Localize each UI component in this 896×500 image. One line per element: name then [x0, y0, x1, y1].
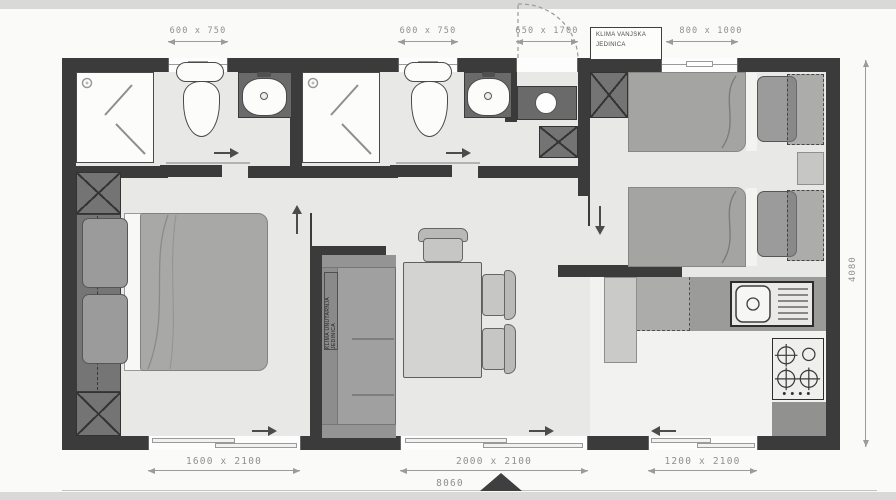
chair-east-2-seat: [482, 328, 506, 370]
pocket-door-bathroom-2: [390, 165, 452, 177]
dim-line-window-2: [398, 41, 458, 42]
water-heater-icon: [535, 92, 557, 114]
kitchen-counter-south: [772, 402, 826, 436]
dim-line-bottom-2: [400, 470, 588, 471]
sofa-cushion-seam-1: [352, 338, 394, 340]
door-slide-arrow-bathroom-1-icon: [214, 152, 230, 154]
bedroom-2-nightstand: [797, 152, 824, 185]
shower-1: [76, 72, 154, 163]
slide-arrow-window-kitchen-icon: [660, 430, 676, 432]
double-bed-pillow-1: [82, 218, 128, 288]
twin-bed-1-sheet-gap: [746, 73, 757, 151]
pocket-door-track-2: [396, 162, 480, 164]
dim-line-bottom-3: [648, 470, 757, 471]
north-marker-icon: [480, 473, 522, 491]
sliding-door-living: [400, 436, 588, 450]
window-bedroom-2: [661, 58, 738, 72]
sink-2-faucet-icon: [482, 72, 495, 77]
double-bed-pillow-2: [82, 294, 128, 364]
kitchen-sink-unit: [730, 281, 814, 327]
chair-north-seat: [423, 238, 463, 262]
kitchen-hob: [772, 338, 824, 400]
twin-bed-2-sheet-gap: [746, 188, 757, 266]
chair-east-1-seat: [482, 274, 506, 316]
floor-plan-canvas: KLIMA UNUTARNJA JEDINICA: [0, 0, 896, 500]
sofa-cushion-seam-2: [352, 394, 394, 396]
entry-door-opening: [516, 58, 578, 72]
dim-line-window-3: [666, 41, 738, 42]
kitchen-tall-cabinet: [604, 277, 637, 363]
twin-bed-1-blanket-fold: [700, 74, 746, 150]
toilet-1-tank: [176, 62, 224, 82]
bedroom-1-wardrobe-north: [76, 172, 121, 214]
sink-1-faucet-icon: [257, 72, 271, 77]
wall-entry-bedroom-2: [578, 72, 590, 196]
pocket-door-track-1: [166, 162, 250, 164]
entry-arrow-bedroom-1-icon: [296, 214, 298, 234]
photo-edge-top: [0, 0, 896, 9]
slide-arrow-door-living-icon: [529, 430, 545, 432]
dim-label-window-1: 600 x 750: [160, 26, 236, 36]
chair-east-1-back: [504, 270, 516, 320]
ac-outdoor-unit-label: KLIMA VANJSKA JEDINICA: [596, 32, 646, 48]
sliding-window-bedroom-1: [148, 436, 301, 450]
toilet-2-tank: [404, 62, 452, 82]
ac-indoor-unit: KLIMA UNUTARNJA JEDINICA: [324, 272, 338, 350]
slide-arrow-window-bedroom-1-icon: [252, 430, 268, 432]
dim-label-window-3: 800 x 1000: [668, 26, 754, 36]
ac-indoor-unit-label: KLIMA UNUTARNJA JEDINICA: [325, 273, 338, 349]
bedroom-1-wardrobe-south: [76, 392, 121, 436]
ac-outdoor-unit: KLIMA VANJSKA JEDINICA: [590, 27, 662, 60]
dim-label-window-2: 600 x 750: [390, 26, 466, 36]
wall-bedroom-1-living: [310, 246, 322, 441]
twin-bed-2-headboard-storage: [787, 190, 824, 261]
bedroom-2-wardrobe: [590, 72, 628, 118]
sofa-armrest-top: [322, 255, 396, 268]
double-bed-duvet-fold: [140, 213, 180, 371]
shower-2: [302, 72, 380, 163]
sliding-window-kitchen: [648, 436, 758, 450]
sink-1-drain: [260, 92, 268, 100]
door-jamb-bedroom-1: [310, 213, 312, 248]
dim-label-bottom-1: 1600 x 2100: [162, 456, 286, 467]
door-jamb-bedroom-2: [588, 196, 590, 226]
entry-arrow-bedroom-2-icon: [599, 206, 601, 226]
chair-east-2-back: [504, 324, 516, 374]
dim-label-total-depth: 4080: [848, 226, 858, 282]
wall-bathrooms-south-mid: [248, 166, 398, 178]
dim-label-bottom-2: 2000 x 2100: [432, 456, 556, 467]
dim-line-total-depth: [865, 60, 866, 447]
wall-sofa-nook: [322, 246, 386, 255]
twin-bed-2-blanket-fold: [700, 189, 746, 265]
dim-line-bottom-1: [148, 470, 300, 471]
door-slide-arrow-bathroom-2-icon: [446, 152, 462, 154]
kitchen-counter-worktop: [637, 277, 690, 331]
dining-table: [403, 262, 482, 378]
dim-label-entry-door: 650 x 1700: [502, 26, 592, 36]
dim-label-total-width: 8060: [426, 478, 474, 489]
pocket-door-bathroom-1: [160, 165, 222, 177]
sofa-armrest-bottom: [322, 424, 396, 438]
dim-line-entry-door: [516, 41, 578, 42]
twin-bed-1-headboard-storage: [787, 74, 824, 145]
sink-2-drain: [484, 92, 492, 100]
dim-line-window-1: [168, 41, 228, 42]
dim-line-total-width: [62, 490, 877, 491]
wall-entry-south: [478, 166, 590, 178]
entry-closet: [539, 126, 578, 158]
dim-label-bottom-3: 1200 x 2100: [642, 456, 763, 467]
photo-edge-bottom: [0, 492, 896, 500]
